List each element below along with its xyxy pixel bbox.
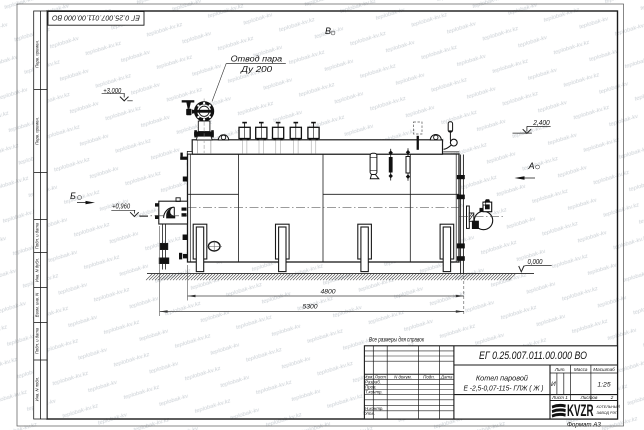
svg-text:+3,000: +3,000 xyxy=(103,88,121,95)
svg-text:Котел паровой: Котел паровой xyxy=(476,373,529,382)
svg-text:Перв. примен.: Перв. примен. xyxy=(35,40,40,68)
svg-text:Т.контр.: Т.контр. xyxy=(365,390,383,395)
svg-text:Подп. и дата: Подп. и дата xyxy=(35,327,40,354)
svg-text:Масштаб: Масштаб xyxy=(593,367,615,372)
svg-text:0,000: 0,000 xyxy=(528,259,543,266)
svg-text:Перв. примен.: Перв. примен. xyxy=(35,117,40,145)
svg-text:Н.контр.: Н.контр. xyxy=(365,406,384,411)
svg-text:КОТЕЛЬНЫЙ: КОТЕЛЬНЫЙ xyxy=(597,405,621,409)
svg-text:А: А xyxy=(528,161,535,171)
svg-text:Дата: Дата xyxy=(440,374,453,379)
svg-text:5300: 5300 xyxy=(302,304,317,311)
svg-text:2: 2 xyxy=(610,395,614,400)
svg-text:Инв. N подл.: Инв. N подл. xyxy=(35,377,40,401)
svg-text:N докум.: N докум. xyxy=(394,374,412,379)
svg-text:Ду 200: Ду 200 xyxy=(240,65,273,74)
svg-text:ЕГ 0.25.007.011.00.000 ВО: ЕГ 0.25.007.011.00.000 ВО xyxy=(479,350,587,362)
svg-text:Масса: Масса xyxy=(574,367,588,372)
svg-text:ЕГ 0.25.007.011.00.000 ВО: ЕГ 0.25.007.011.00.000 ВО xyxy=(51,14,140,21)
svg-text:Лит.: Лит. xyxy=(554,367,566,372)
svg-text:Инв. N дубл.: Инв. N дубл. xyxy=(35,258,40,282)
svg-text:2,400: 2,400 xyxy=(532,120,550,127)
svg-text:Утв.: Утв. xyxy=(365,411,375,416)
svg-text:+0,960: +0,960 xyxy=(112,204,130,211)
svg-text:Формат А3: Формат А3 xyxy=(567,422,601,429)
svg-text:Б: Б xyxy=(70,191,76,201)
svg-text:Подп. и дата: Подп. и дата xyxy=(35,222,40,249)
svg-text:4800: 4800 xyxy=(320,289,335,296)
svg-text:Взам. инв. N: Взам. инв. N xyxy=(35,292,40,317)
svg-text:ЗАВОД РЭП: ЗАВОД РЭП xyxy=(597,411,618,415)
svg-text:И: И xyxy=(551,381,556,388)
svg-text:Подп.: Подп. xyxy=(423,374,435,379)
svg-text:В: В xyxy=(325,26,331,36)
svg-text:Все размеры для справок: Все размеры для справок xyxy=(369,336,425,343)
svg-text:Отвод пара: Отвод пара xyxy=(231,54,283,63)
svg-text:KVZR: KVZR xyxy=(567,402,594,420)
svg-text:1:25: 1:25 xyxy=(597,382,610,389)
svg-text:Лист 1: Лист 1 xyxy=(551,395,568,400)
svg-text:Е -2,5-0,07-115- ГЛЖ ( Ж ): Е -2,5-0,07-115- ГЛЖ ( Ж ) xyxy=(464,384,544,393)
svg-text:Листов: Листов xyxy=(580,395,598,400)
